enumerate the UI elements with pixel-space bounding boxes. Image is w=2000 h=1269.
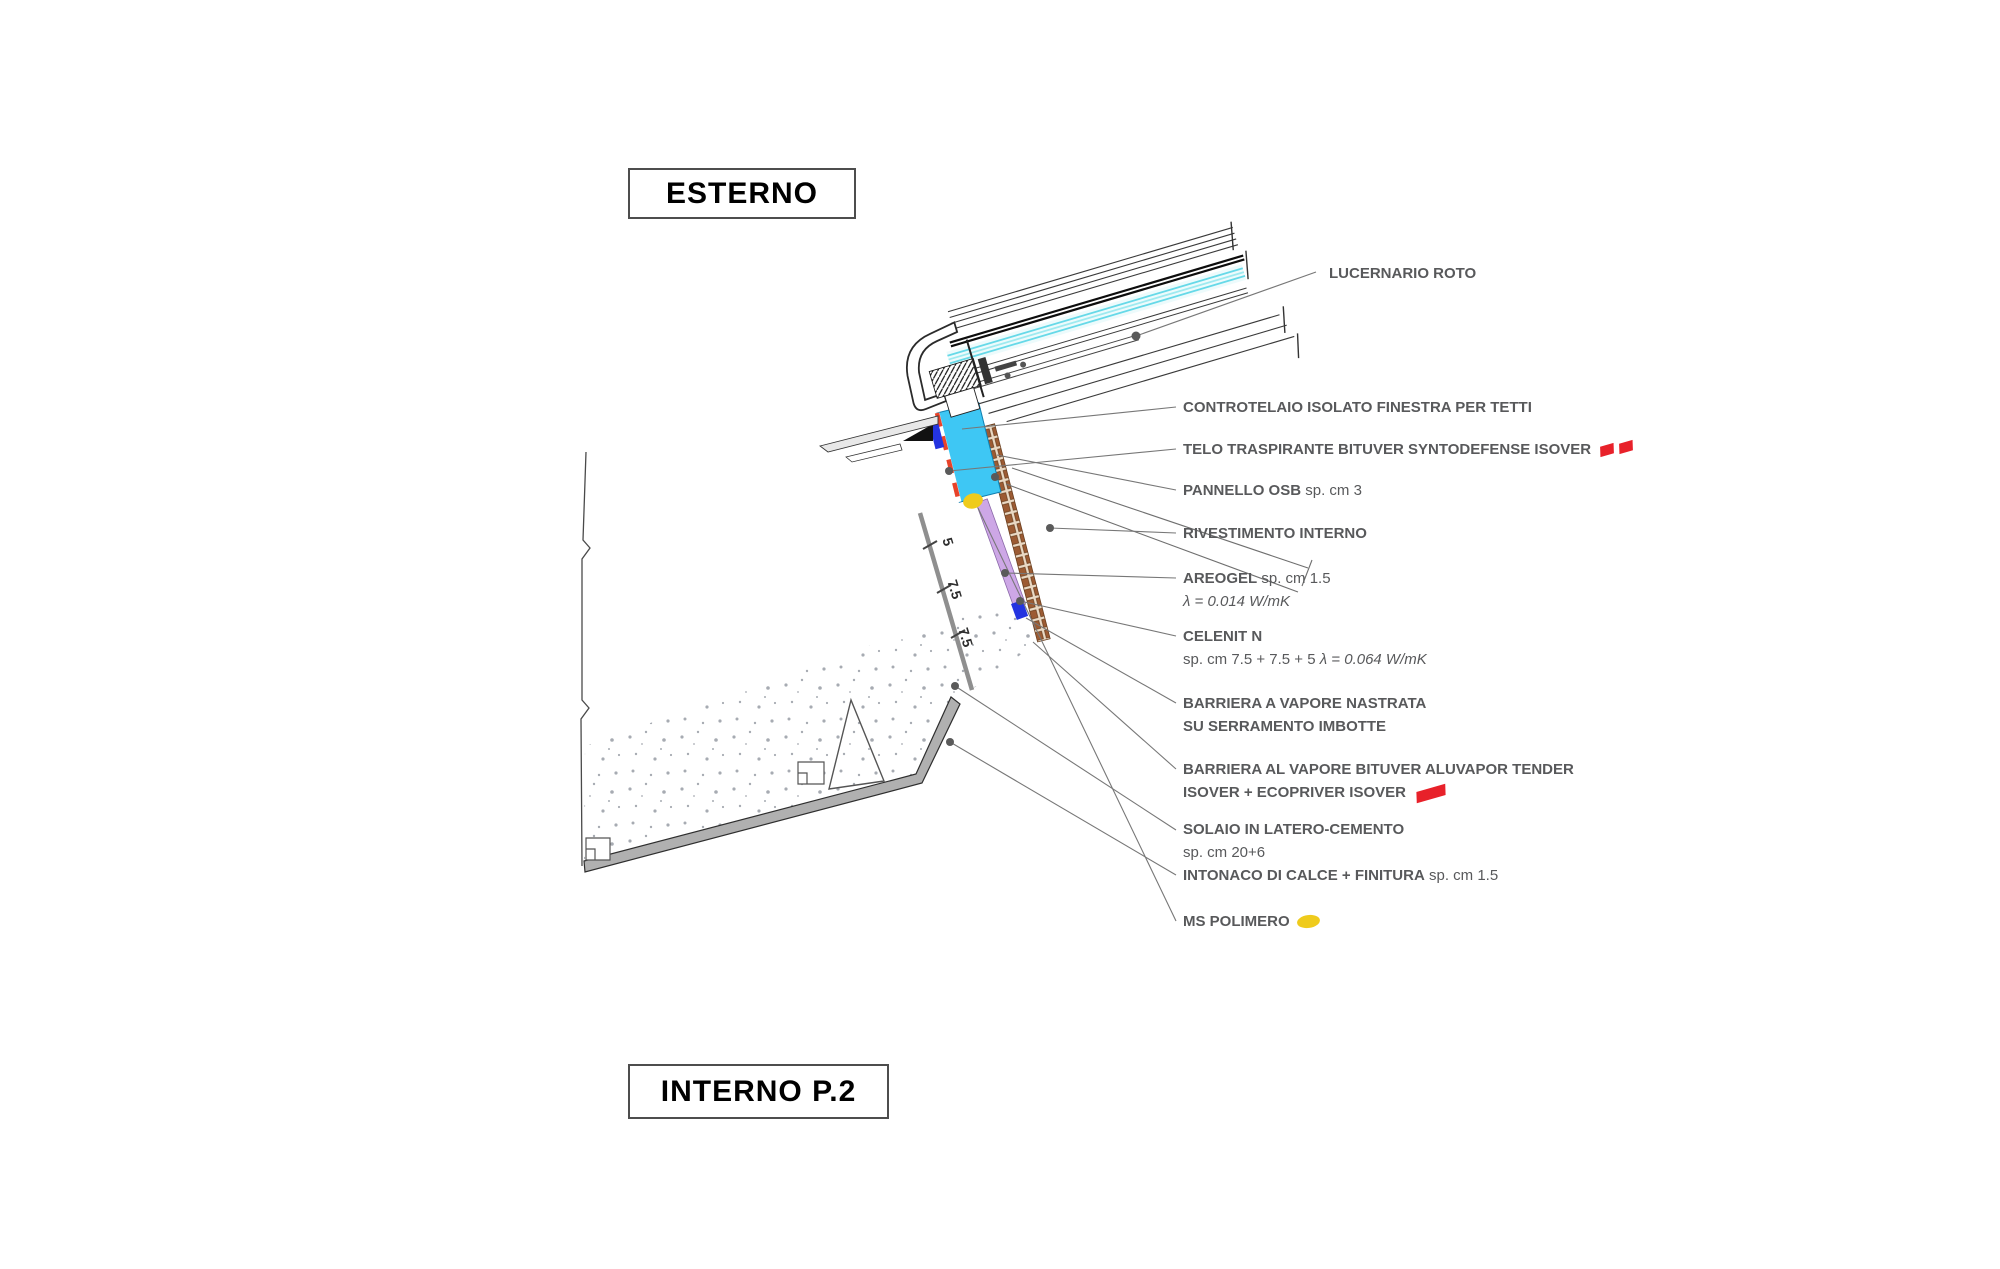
exterior-title-box: ESTERNO [628,168,856,219]
anchor-symbol [798,762,824,784]
celenit-blocks [133,78,259,232]
yellow-mark-icon [1296,913,1321,929]
membrane-strip [0,76,229,217]
label-barriera-nastrata: BARRIERA A VAPORE NASTRATA SU SERRAMENTO… [1183,692,1426,738]
red-mark-icon [1619,440,1633,454]
interior-title: INTERNO P.2 [661,1075,857,1109]
dim-5: 5 [939,536,957,548]
vapour-barrier-line [0,203,285,330]
label-ms-polimero: MS POLIMERO [1183,910,1320,933]
section-drawing: 5 7.5 7.5 [0,0,2000,1269]
construction-detail-page: 5 7.5 7.5 ESTERNO INTERNO P.2 LUCERNARIO… [0,0,2000,1269]
membrane-red-dashed-line [0,78,224,198]
red-mark-icon [1600,443,1614,457]
label-solaio: SOLAIO IN LATERO-CEMENTO sp. cm 20+6 [1183,818,1404,864]
fascia-piece [167,25,223,85]
label-lucernario: LUCERNARIO ROTO [1329,262,1476,285]
exterior-title: ESTERNO [666,177,818,211]
insulation-wool [0,122,168,326]
roof-battens [0,44,195,150]
roof-package [0,0,317,448]
label-rivestimento: RIVESTIMENTO INTERNO [1183,522,1367,545]
interior-title-box: INTERNO P.2 [628,1064,889,1119]
dim-7-5-a: 7.5 [944,578,965,601]
anchor-symbol [586,838,610,860]
label-intonaco: INTONACO DI CALCE + FINITURA sp. cm 1.5 [1183,864,1498,887]
red-mark-icon [1416,784,1445,804]
roof-tiles [0,0,207,157]
label-pannello-osb: PANNELLO OSB sp. cm 3 [1183,479,1362,502]
label-areogel: AREOGEL sp. cm 1.5 λ = 0.014 W/mK [1183,567,1331,613]
label-barriera-aluvapor: BARRIERA AL VAPORE BITUVER ALUVAPOR TEND… [1183,758,1574,804]
hollow-block-grid [0,270,180,443]
label-celenit: CELENIT N sp. cm 7.5 + 7.5 + 5 λ = 0.064… [1183,625,1427,671]
flashing-arm [846,444,902,462]
label-controtelaio: CONTROTELAIO ISOLATO FINESTRA PER TETTI [1183,396,1532,419]
label-telo: TELO TRASPIRANTE BITUVER SYNTODEFENSE IS… [1183,438,1633,461]
